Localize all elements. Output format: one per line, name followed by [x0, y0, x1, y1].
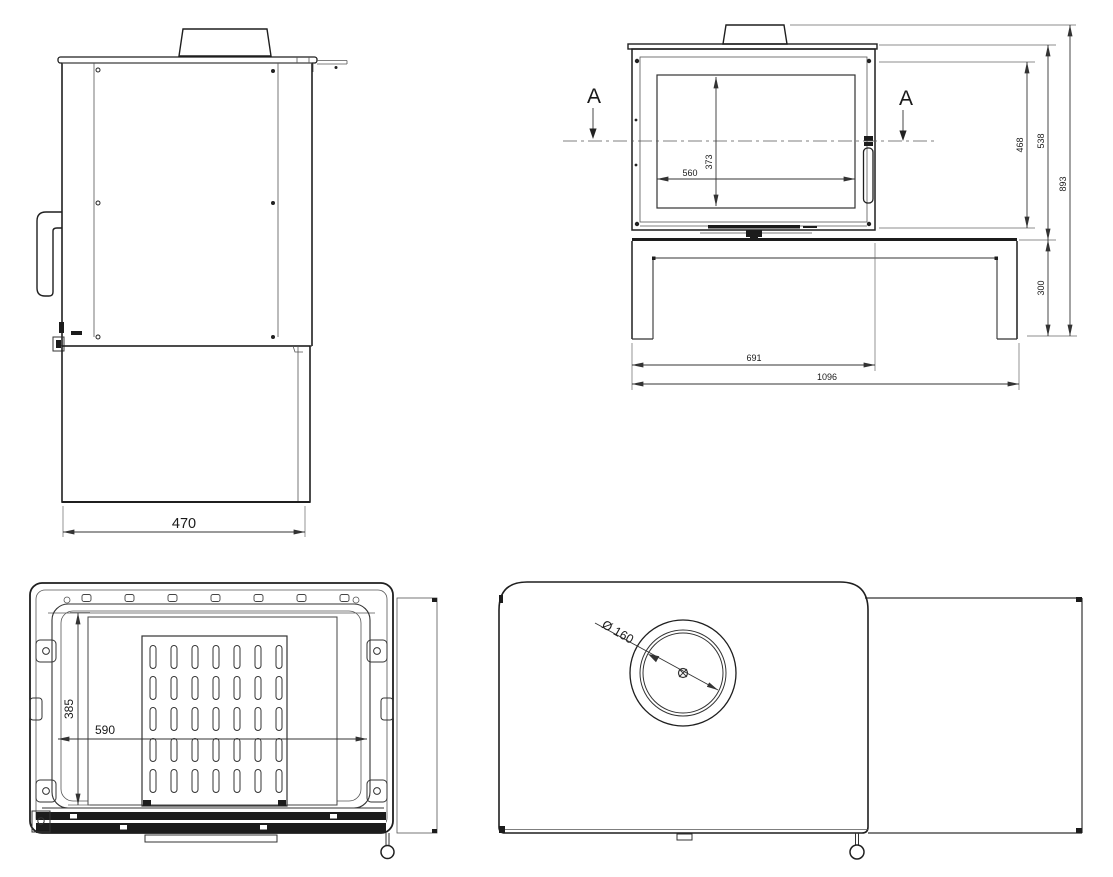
dim-label-468: 468 — [1015, 137, 1025, 152]
flue-collar-front — [723, 25, 787, 44]
dim-plinth-height-300: 300 — [1036, 240, 1048, 336]
dim-label-590: 590 — [95, 723, 115, 737]
drawing-canvas: 470 — [0, 0, 1113, 877]
door-handle-side — [37, 212, 62, 296]
dim-firebox-height-468: 468 — [1015, 62, 1027, 228]
hinge-lugs-row — [82, 595, 349, 602]
dim-label-470: 470 — [172, 516, 196, 532]
corner-bolt — [635, 59, 639, 63]
dim-glass-height-373: 373 — [704, 77, 716, 206]
dim-flue-diameter: Ø 160 — [595, 617, 718, 690]
dim-label-373: 373 — [704, 154, 714, 169]
door-front — [632, 49, 875, 240]
side-view: 470 — [37, 29, 347, 537]
door-latch — [864, 136, 873, 141]
technical-drawing-sheet: 470 — [0, 0, 1113, 877]
bench-side-panel — [397, 598, 437, 833]
dim-label-flue-diameter: Ø 160 — [600, 617, 637, 646]
door-knob-firebox — [381, 833, 394, 859]
dim-overall-height-893: 893 — [1058, 25, 1070, 336]
bottom-latch — [746, 230, 762, 237]
top-plate-side — [58, 57, 347, 72]
top-view: Ø 160 — [499, 582, 1082, 859]
dim-label-538: 538 — [1036, 133, 1046, 148]
panel-screws-side — [96, 68, 275, 339]
front-view: A A 560 373 468 — [563, 25, 1077, 390]
corner-bolt — [635, 222, 639, 226]
firebox-floor — [32, 808, 386, 842]
ash-lip-tab-top — [677, 834, 692, 840]
hinge-pin — [635, 119, 638, 122]
flue-collar-side — [179, 29, 271, 56]
dim-label-560: 560 — [682, 168, 697, 178]
dim-opening-height-385: 385 — [62, 613, 90, 806]
dim-label-691: 691 — [746, 353, 761, 363]
pedestal-base-side — [62, 346, 310, 502]
dim-depth-470: 470 — [63, 506, 305, 537]
door-glass — [657, 75, 855, 208]
corner-bolt — [867, 222, 871, 226]
hinge-pin — [635, 164, 638, 167]
dim-body-width-691: 691 — [632, 353, 875, 365]
dim-label-1096: 1096 — [817, 372, 837, 382]
section-label-a-right: A — [899, 87, 913, 110]
dim-body-height-538: 538 — [1036, 45, 1048, 240]
section-arrow-left — [589, 129, 596, 140]
corner-bolt — [867, 59, 871, 63]
bench-front — [632, 238, 1017, 339]
door-handle-front — [864, 148, 874, 203]
ash-lip-tab — [145, 835, 277, 842]
flue-outlet — [630, 620, 736, 726]
section-cut-marks: A A — [563, 85, 935, 141]
firebox-view: 385 590 — [30, 583, 437, 859]
dim-label-300: 300 — [1036, 280, 1046, 295]
section-label-a-left: A — [587, 85, 601, 108]
dim-overall-width-1096: 1096 — [632, 372, 1019, 384]
dim-label-893: 893 — [1058, 176, 1068, 191]
dim-glass-width-560: 560 — [657, 168, 855, 179]
door-knob-top — [850, 833, 864, 859]
dim-label-385: 385 — [62, 699, 76, 719]
section-arrow-right — [899, 131, 906, 142]
bench-top — [865, 597, 1082, 833]
